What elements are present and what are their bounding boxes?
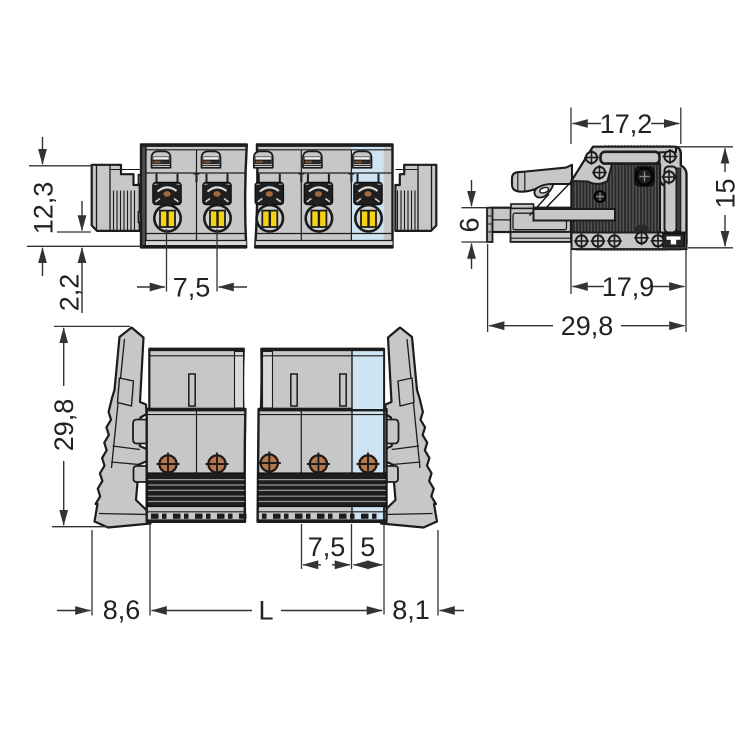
svg-text:17,2: 17,2: [600, 109, 653, 139]
svg-text:5: 5: [360, 532, 375, 562]
svg-text:29,8: 29,8: [561, 311, 614, 341]
svg-text:2,2: 2,2: [55, 274, 85, 312]
svg-text:L: L: [258, 596, 273, 626]
svg-text:29,8: 29,8: [49, 399, 79, 452]
svg-text:12,3: 12,3: [29, 182, 59, 235]
svg-text:7,5: 7,5: [308, 532, 346, 562]
svg-text:8,6: 8,6: [103, 595, 141, 625]
svg-text:15: 15: [711, 178, 741, 208]
svg-text:6: 6: [455, 217, 485, 232]
svg-text:7,5: 7,5: [173, 273, 211, 303]
svg-text:17,9: 17,9: [602, 272, 655, 302]
svg-text:8,1: 8,1: [392, 595, 430, 625]
